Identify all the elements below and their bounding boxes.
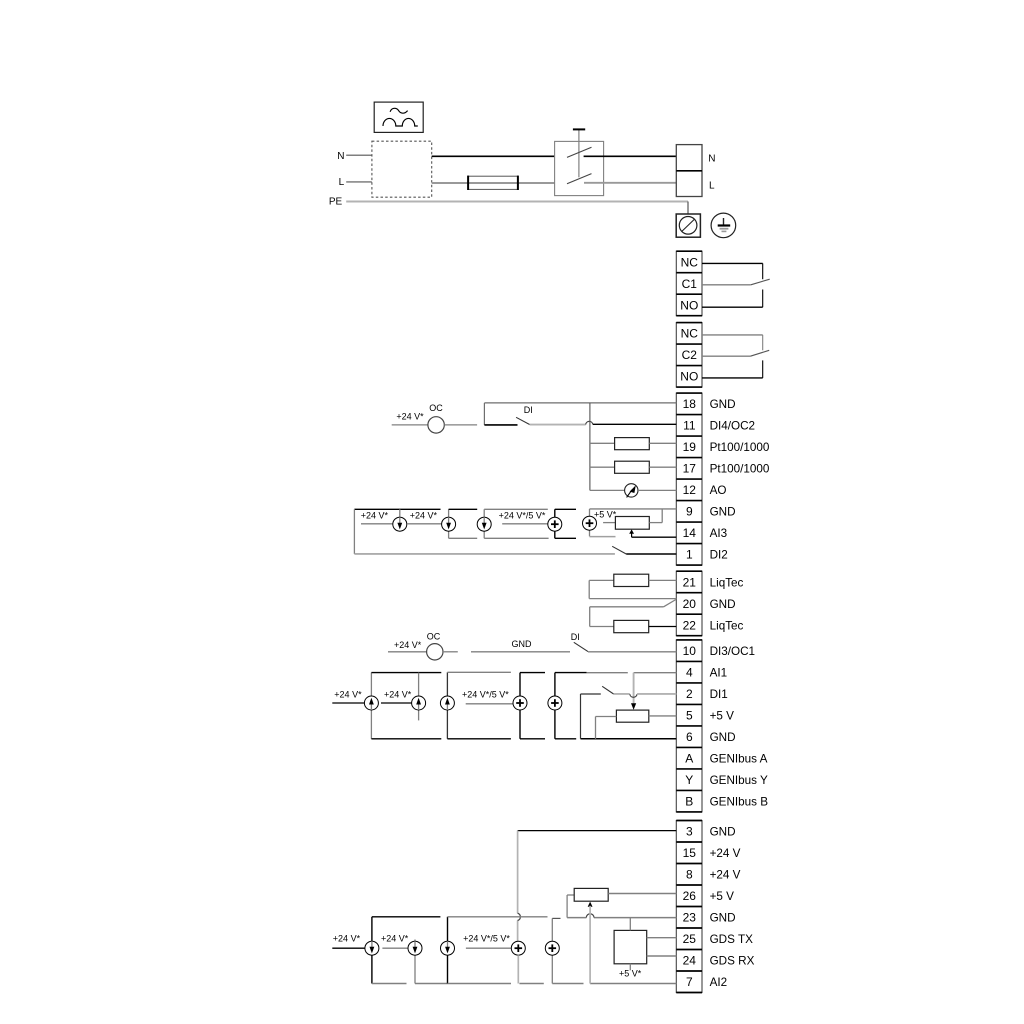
svg-text:B: B bbox=[685, 794, 693, 808]
svg-text:GND: GND bbox=[710, 731, 736, 744]
svg-text:+5 V: +5 V bbox=[710, 709, 735, 722]
svg-text:19: 19 bbox=[683, 440, 697, 454]
svg-text:6: 6 bbox=[686, 730, 693, 744]
svg-text:+24 V: +24 V bbox=[710, 869, 741, 882]
svg-text:22: 22 bbox=[683, 618, 697, 632]
svg-text:17: 17 bbox=[683, 462, 697, 476]
svg-text:DI: DI bbox=[524, 405, 533, 415]
svg-text:N: N bbox=[708, 153, 715, 164]
svg-text:2: 2 bbox=[686, 687, 693, 701]
svg-text:5: 5 bbox=[686, 708, 693, 722]
svg-text:26: 26 bbox=[683, 889, 697, 903]
svg-text:OC: OC bbox=[429, 403, 443, 413]
svg-text:+24 V*: +24 V* bbox=[396, 412, 424, 422]
svg-text:11: 11 bbox=[683, 419, 696, 433]
svg-text:GND: GND bbox=[710, 598, 736, 611]
svg-text:+24 V*: +24 V* bbox=[333, 934, 361, 944]
svg-text:C1: C1 bbox=[682, 277, 698, 291]
svg-text:GND: GND bbox=[710, 912, 736, 925]
svg-text:18: 18 bbox=[683, 397, 697, 411]
svg-text:GDS TX: GDS TX bbox=[710, 933, 754, 946]
svg-text:3: 3 bbox=[686, 825, 693, 839]
svg-text:AI2: AI2 bbox=[710, 976, 728, 989]
svg-text:GND: GND bbox=[710, 506, 736, 519]
svg-text:+24 V*: +24 V* bbox=[410, 510, 438, 520]
svg-text:N: N bbox=[337, 151, 344, 162]
svg-text:+24 V*: +24 V* bbox=[394, 640, 422, 650]
svg-text:L: L bbox=[339, 177, 345, 188]
svg-text:20: 20 bbox=[683, 597, 697, 611]
svg-text:LiqTec: LiqTec bbox=[710, 619, 744, 632]
svg-text:24: 24 bbox=[683, 954, 697, 968]
svg-text:Pt100/1000: Pt100/1000 bbox=[710, 441, 770, 454]
svg-text:DI4/OC2: DI4/OC2 bbox=[710, 420, 755, 433]
svg-text:LiqTec: LiqTec bbox=[710, 576, 744, 589]
svg-text:DI3/OC1: DI3/OC1 bbox=[710, 645, 755, 658]
svg-text:GND: GND bbox=[512, 639, 533, 649]
svg-text:21: 21 bbox=[683, 575, 697, 589]
svg-text:+24 V*: +24 V* bbox=[334, 689, 362, 699]
svg-text:NO: NO bbox=[680, 370, 698, 384]
svg-text:9: 9 bbox=[686, 505, 693, 519]
svg-text:L: L bbox=[709, 180, 715, 191]
svg-text:DI: DI bbox=[571, 632, 580, 642]
svg-text:23: 23 bbox=[683, 911, 697, 925]
svg-text:12: 12 bbox=[683, 483, 697, 497]
svg-text:+24 V*: +24 V* bbox=[384, 689, 412, 699]
svg-text:OC: OC bbox=[427, 632, 441, 642]
svg-text:PE: PE bbox=[329, 197, 343, 208]
svg-text:4: 4 bbox=[686, 665, 693, 679]
svg-text:10: 10 bbox=[683, 644, 697, 658]
svg-text:+24 V*/5 V*: +24 V*/5 V* bbox=[463, 934, 510, 944]
svg-text:+24 V*/5 V*: +24 V*/5 V* bbox=[462, 690, 509, 700]
svg-text:GND: GND bbox=[710, 826, 736, 839]
svg-text:GENIbus A: GENIbus A bbox=[710, 752, 768, 765]
svg-text:AO: AO bbox=[710, 484, 727, 497]
svg-text:DI1: DI1 bbox=[710, 688, 728, 701]
svg-text:NO: NO bbox=[680, 298, 698, 312]
svg-text:AI3: AI3 bbox=[710, 527, 728, 540]
svg-text:GND: GND bbox=[710, 398, 736, 411]
svg-text:7: 7 bbox=[686, 975, 693, 989]
svg-text:+24 V*: +24 V* bbox=[381, 934, 409, 944]
svg-text:DI2: DI2 bbox=[710, 549, 728, 562]
svg-text:NC: NC bbox=[681, 327, 699, 341]
svg-text:NC: NC bbox=[681, 255, 699, 269]
svg-text:+5 V: +5 V bbox=[710, 890, 735, 903]
svg-text:GDS RX: GDS RX bbox=[710, 955, 755, 968]
svg-text:15: 15 bbox=[683, 846, 697, 860]
svg-text:+24 V*: +24 V* bbox=[361, 510, 389, 520]
svg-text:+5 V*: +5 V* bbox=[594, 510, 617, 520]
svg-text:Pt100/1000: Pt100/1000 bbox=[710, 463, 770, 476]
svg-text:+5 V*: +5 V* bbox=[619, 969, 642, 979]
svg-text:AI1: AI1 bbox=[710, 666, 728, 679]
svg-text:A: A bbox=[685, 751, 693, 765]
svg-text:C2: C2 bbox=[682, 348, 698, 362]
svg-text:25: 25 bbox=[683, 932, 697, 946]
svg-text:GENIbus Y: GENIbus Y bbox=[710, 774, 768, 787]
svg-text:1: 1 bbox=[686, 548, 693, 562]
svg-text:8: 8 bbox=[686, 868, 693, 882]
svg-text:Y: Y bbox=[685, 773, 693, 787]
svg-text:14: 14 bbox=[683, 526, 697, 540]
svg-text:+24 V: +24 V bbox=[710, 847, 741, 860]
svg-text:GENIbus B: GENIbus B bbox=[710, 795, 769, 808]
svg-text:+24 V*/5 V*: +24 V*/5 V* bbox=[499, 511, 546, 521]
